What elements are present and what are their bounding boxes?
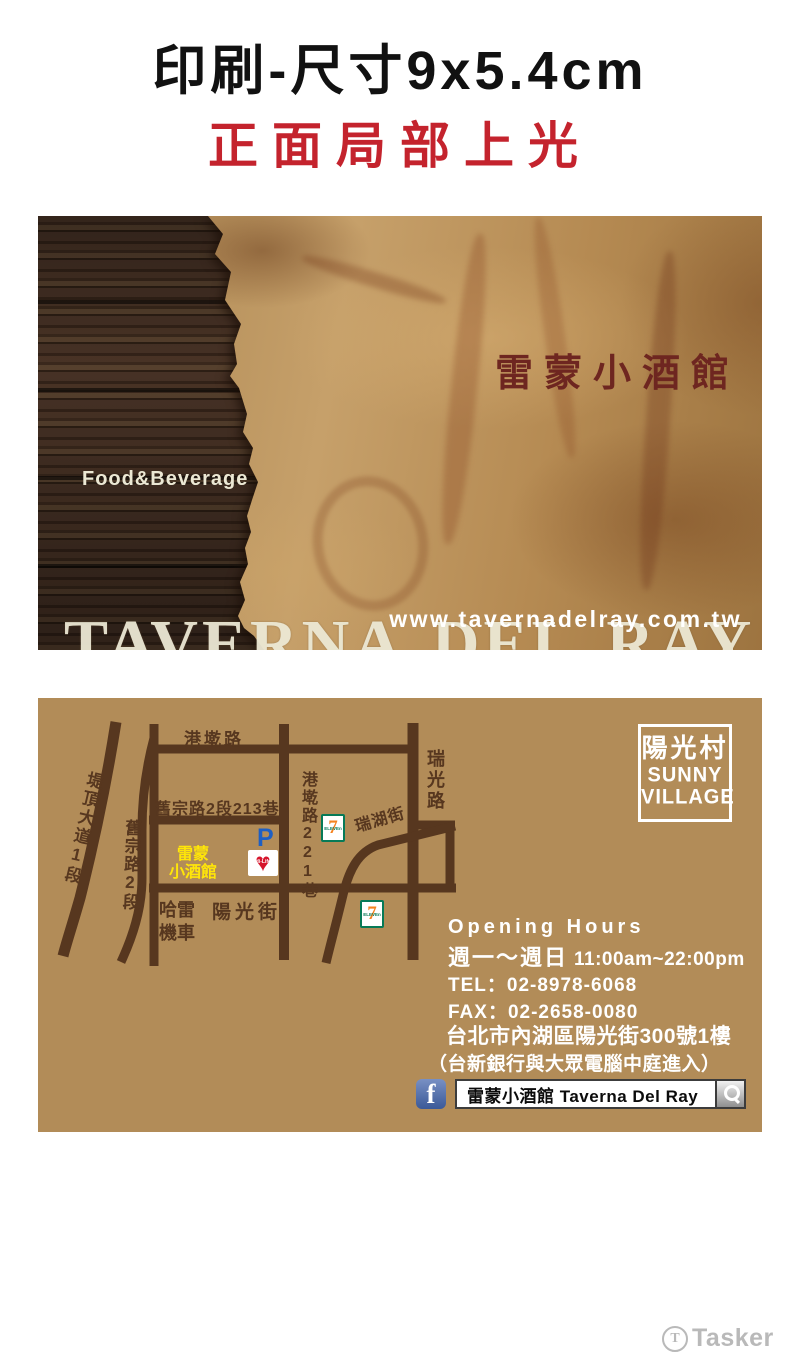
print-spec-title: 印刷-尺寸9x5.4cm	[0, 26, 800, 105]
ink-stroke-decoration	[528, 216, 582, 459]
facebook-search-row: f 雷蒙小酒館 Taverna Del Ray	[416, 1079, 746, 1109]
magnifier-button	[715, 1081, 744, 1107]
tasker-logo-icon: T	[662, 1326, 688, 1352]
sunny-village-badge: 陽光村 SUNNY VILLAGE	[638, 724, 732, 822]
ink-stroke-decoration	[434, 233, 493, 546]
facebook-search-text: 雷蒙小酒館 Taverna Del Ray	[457, 1082, 715, 1107]
tasker-watermark: T Tasker	[662, 1324, 774, 1353]
seven-eleven-icon: 7 ELEVEn	[321, 814, 345, 842]
ink-stroke-decoration	[634, 250, 682, 589]
address-note: （台新銀行與大眾電腦中庭進入）	[428, 1049, 721, 1076]
street-label-yangguang: 陽光街	[212, 897, 281, 924]
facebook-search-bar: 雷蒙小酒館 Taverna Del Ray	[455, 1079, 746, 1109]
card-back-preview: 港墘路 舊宗路2段213巷 港墘路221巷 瑞光路 瑞湖街 堤頂大道1段 舊宗路…	[38, 698, 762, 1132]
website-url: www.tavernadelray.com.tw	[389, 606, 742, 633]
facebook-icon: f	[416, 1079, 446, 1109]
tagline: Food&Beverage	[82, 468, 248, 491]
tasker-brand-name: Tasker	[692, 1324, 774, 1353]
ink-stroke-decoration	[300, 251, 448, 309]
address: 台北市內湖區陽光街300號1樓	[446, 1020, 731, 1050]
street-label-gangqian: 港墘路	[184, 725, 244, 750]
road-ruihu	[326, 826, 455, 963]
street-label-lane221: 港墘路221巷	[295, 771, 319, 900]
street-label-ruiguang: 瑞光路	[422, 749, 448, 812]
landmark-harley: 哈雷 機車	[159, 899, 195, 944]
ink-loop-decoration	[302, 467, 439, 620]
print-finish-subtitle: 正面局部上光	[0, 106, 800, 178]
torn-parchment-background	[38, 216, 762, 650]
opening-days-hours: 週一～週日11:00am~22:00pm	[448, 940, 745, 972]
shop-name-chinese: 雷蒙小酒館	[495, 342, 740, 397]
seven-eleven-icon: 7 ELEVEn	[360, 900, 384, 928]
street-label-jiuzong: 舊宗路2段	[116, 819, 144, 912]
card-front-preview: 雷蒙小酒館 TAVERNA DEL RAY Food&Beverage www.…	[38, 216, 762, 650]
hilife-store-icon: ♥ Hi-Life	[248, 850, 278, 876]
opening-hours-label: Opening Hours	[448, 916, 644, 939]
telephone-number: TEL：02-8978-6068	[448, 970, 637, 997]
street-label-lane213: 舊宗路2段213巷	[155, 795, 280, 819]
shop-location-label: 雷蒙 小酒館	[158, 846, 228, 883]
